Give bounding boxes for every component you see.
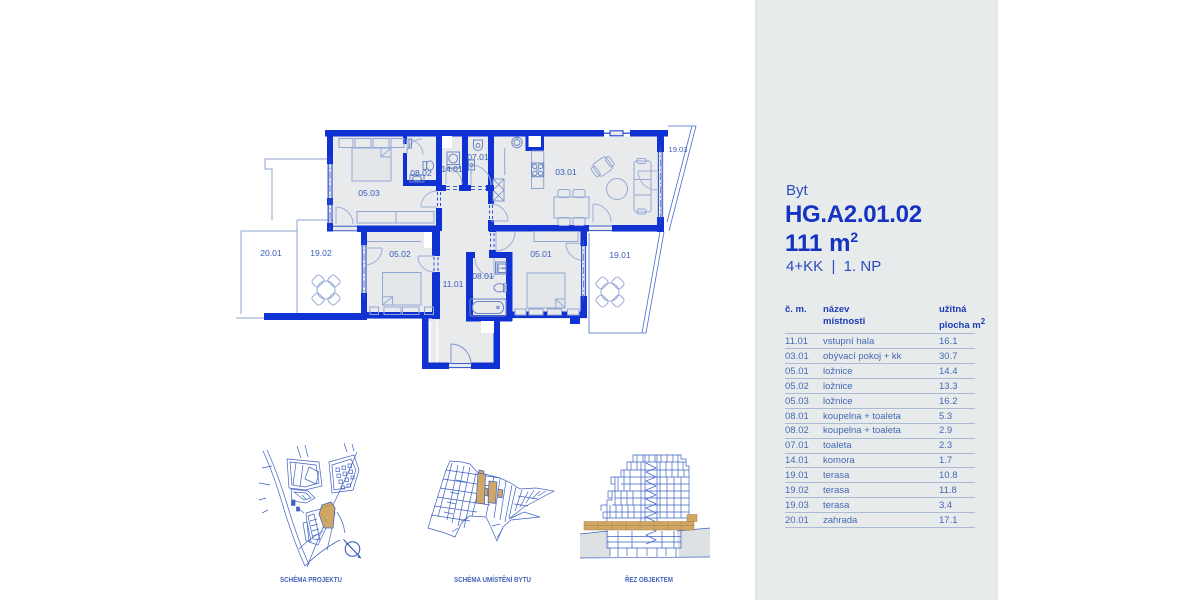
svg-text:03.01: 03.01 (555, 167, 577, 177)
svg-text:SCHÉMA PROJEKTU: SCHÉMA PROJEKTU (280, 575, 342, 584)
svg-text:05.01: 05.01 (530, 249, 552, 259)
svg-text:SCHÉMA UMÍSTĚNÍ BYTU: SCHÉMA UMÍSTĚNÍ BYTU (454, 575, 531, 584)
svg-text:08.01: 08.01 (472, 271, 494, 281)
svg-text:ŘEZ OBJEKTEM: ŘEZ OBJEKTEM (625, 575, 673, 584)
svg-text:07.01: 07.01 (467, 152, 489, 162)
svg-text:19.03: 19.03 (668, 145, 687, 154)
svg-text:08.02: 08.02 (410, 168, 432, 178)
svg-text:19.01: 19.01 (609, 250, 631, 260)
svg-text:11.01: 11.01 (443, 279, 464, 289)
svg-text:20.01: 20.01 (260, 248, 282, 258)
svg-text:05.02: 05.02 (389, 249, 411, 259)
svg-text:05.03: 05.03 (358, 188, 380, 198)
svg-text:19.02: 19.02 (310, 248, 332, 258)
svg-text:14.01: 14.01 (441, 164, 463, 174)
